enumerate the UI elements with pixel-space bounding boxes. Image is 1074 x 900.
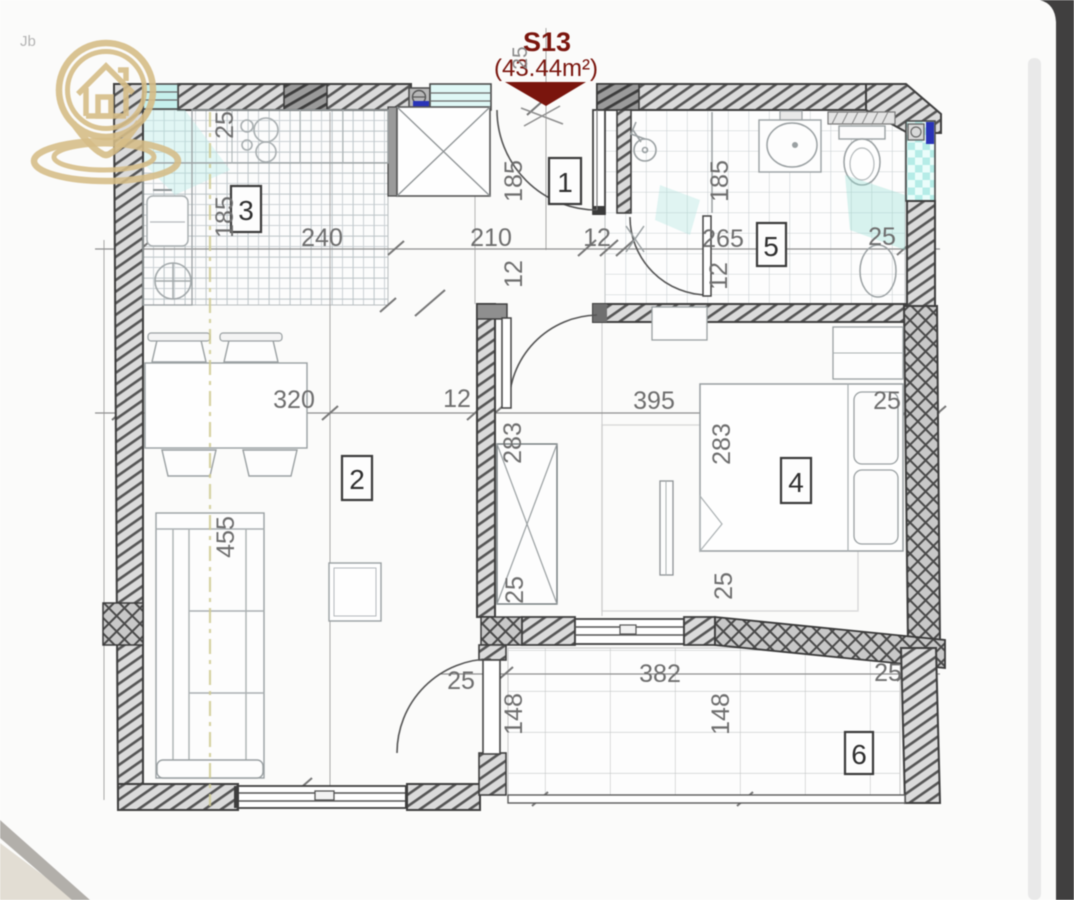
svg-text:5: 5 <box>763 231 779 262</box>
svg-text:25: 25 <box>874 659 902 687</box>
svg-text:148: 148 <box>707 693 735 735</box>
svg-text:185: 185 <box>500 160 528 202</box>
svg-text:2: 2 <box>349 464 365 495</box>
svg-text:25: 25 <box>873 387 901 415</box>
svg-text:25: 25 <box>868 223 896 251</box>
svg-text:12: 12 <box>583 224 611 252</box>
svg-text:210: 210 <box>470 224 512 252</box>
svg-text:455: 455 <box>212 516 240 558</box>
svg-text:185: 185 <box>211 196 239 238</box>
svg-text:395: 395 <box>633 387 675 415</box>
svg-text:1: 1 <box>557 167 573 198</box>
svg-text:382: 382 <box>639 660 681 688</box>
svg-text:240: 240 <box>301 224 343 252</box>
svg-text:25: 25 <box>501 576 529 604</box>
svg-text:25: 25 <box>710 572 738 600</box>
svg-text:Jb: Jb <box>20 33 36 50</box>
svg-text:25: 25 <box>211 111 239 139</box>
svg-text:4: 4 <box>788 467 804 498</box>
svg-text:283: 283 <box>499 422 527 464</box>
svg-text:320: 320 <box>273 386 315 414</box>
svg-text:3: 3 <box>238 195 254 226</box>
svg-text:12: 12 <box>443 385 471 413</box>
svg-text:6: 6 <box>851 739 867 770</box>
svg-text:185: 185 <box>706 160 734 202</box>
svg-text:25: 25 <box>509 46 532 69</box>
svg-text:12: 12 <box>705 262 733 290</box>
svg-text:283: 283 <box>708 423 736 465</box>
svg-text:265: 265 <box>702 225 744 253</box>
svg-text:12: 12 <box>500 260 528 288</box>
svg-text:148: 148 <box>500 693 528 735</box>
svg-text:25: 25 <box>447 667 475 695</box>
